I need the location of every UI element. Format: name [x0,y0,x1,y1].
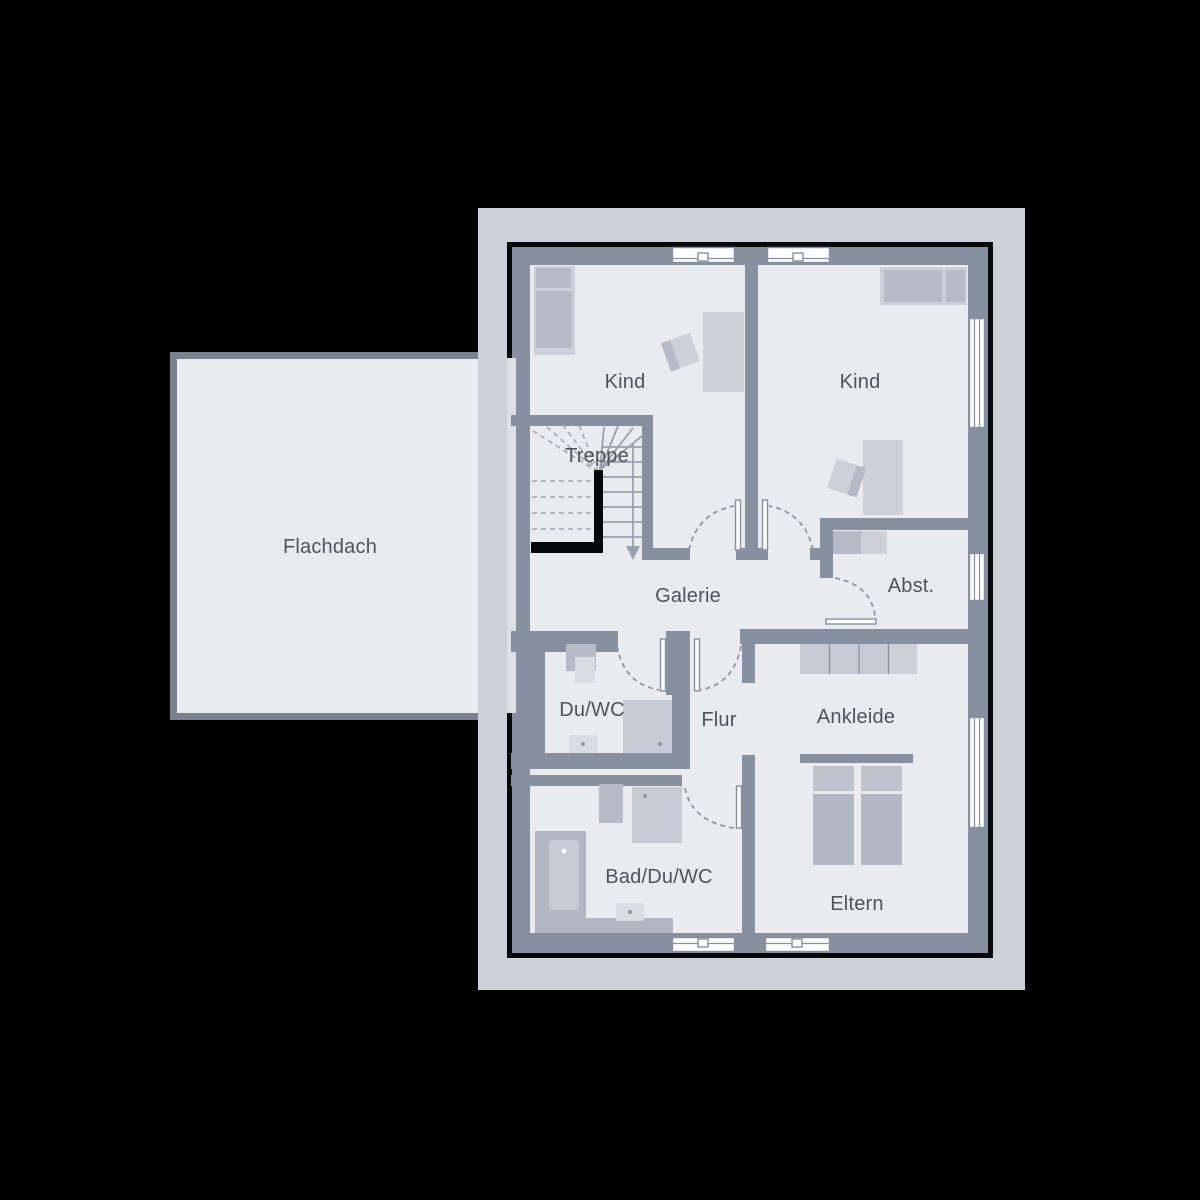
wall-abst-left [820,530,833,578]
wall-stair-top [511,415,653,426]
room-label-ankleide: Ankleide [817,706,895,728]
wall-eltern-west-lower [742,755,755,933]
room-label-abst: Abst. [888,575,935,597]
stair-parapet-vertical [594,470,603,553]
room-label-treppe: Treppe [565,445,629,467]
bed-kind-left [703,312,744,392]
bed-kind-right [880,267,967,305]
window-kind-left-north [672,248,735,263]
sink-bad [599,784,623,823]
wall-kind-divider [745,265,758,560]
room-label-kind-left: Kind [605,371,646,393]
window-kind-right-east [970,319,985,428]
shower-bad [632,787,682,843]
window-abst-east [970,554,985,601]
window-kind-right-north [767,248,830,263]
wall-stair-right [642,415,653,560]
room-label-kind-right: Kind [840,371,881,393]
wall-duwc-west-lining [530,644,545,753]
wall-kind-south-a [653,548,690,560]
wardrobe-kind-left [534,266,575,355]
wall-eltern-west-upper [742,631,755,683]
wall-duwc-flur [666,631,690,695]
floor-plan-svg: Flachdach Kind Kind Treppe Galerie Abst.… [0,0,1200,1200]
wall-duwc-south [511,753,690,769]
window-bad-south [672,938,735,952]
desk-kind-right [863,440,903,515]
wall-abst-top [820,518,968,530]
floor-plan-image: Flachdach Kind Kind Treppe Galerie Abst.… [0,0,1200,1200]
window-eltern-east [970,718,985,828]
wall-galerie-south-left [511,631,618,652]
toilet-bad [616,903,644,921]
wardrobe-ankleide [800,644,917,674]
wall-bad-north [511,775,682,786]
stair-parapet-horizontal [531,542,603,553]
room-label-eltern: Eltern [830,893,883,915]
west-glazing-band [507,358,516,713]
shower-duwc [623,700,672,753]
wall-ankleide-north [740,629,968,644]
room-label-duwc: Du/WC [559,699,624,721]
room-label-galerie: Galerie [655,585,721,607]
room-label-bad: Bad/Du/WC [605,866,712,888]
window-eltern-south [765,938,830,952]
shelf-abst [833,531,887,554]
wall-bed-headboard [800,754,913,763]
room-label-flachdach: Flachdach [283,536,377,558]
toilet-duwc [569,735,598,753]
room-label-flur: Flur [701,709,736,731]
